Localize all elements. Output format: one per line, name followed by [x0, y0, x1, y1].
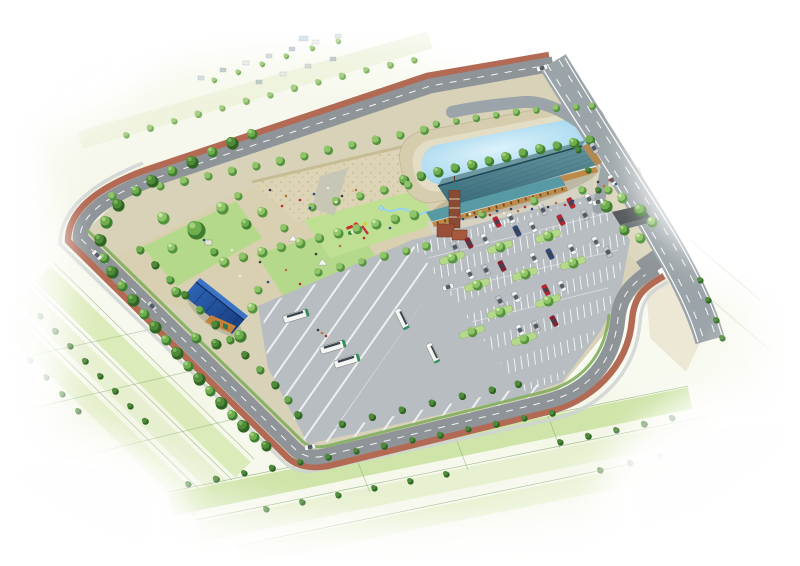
vignette: [0, 0, 800, 566]
site-plan-canvas: [0, 0, 800, 566]
site-plan-illustration: [0, 0, 800, 566]
